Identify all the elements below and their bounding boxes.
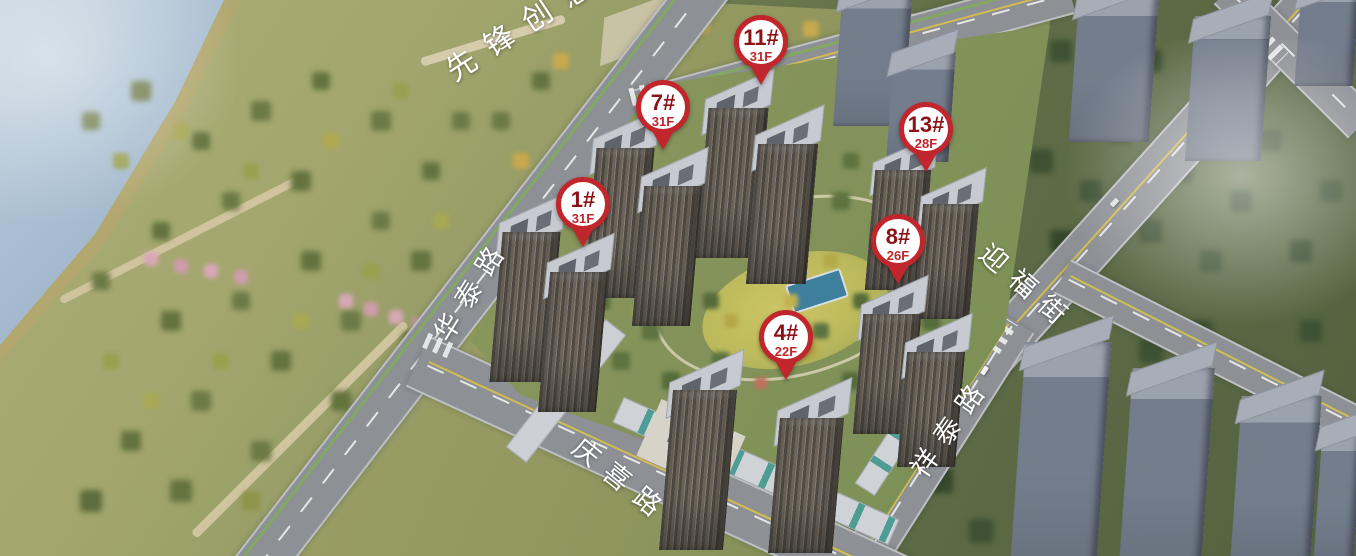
building-pin-8[interactable]: 8# 26F <box>870 214 926 286</box>
pin-number: 13# <box>908 112 945 137</box>
building-pin-13[interactable]: 13# 28F <box>898 102 954 174</box>
context-building <box>1313 430 1356 556</box>
context-building <box>1230 396 1322 556</box>
pin-floors: 31F <box>750 49 772 64</box>
aerial-masterplan: 先锋创意 华泰路 迎福街 祥泰路 庆喜路 1# 31F 4# 22F 7# 31… <box>0 0 1356 556</box>
pin-number: 1# <box>571 187 595 212</box>
context-building <box>1295 0 1356 86</box>
courtyard-trees-red <box>0 0 2 2</box>
pin-floors: 31F <box>572 211 594 226</box>
pin-number: 4# <box>774 320 798 345</box>
context-building <box>1069 0 1159 142</box>
pin-floors: 31F <box>652 114 674 129</box>
pin-floors: 26F <box>887 248 909 263</box>
pin-number: 7# <box>651 90 675 115</box>
context-building <box>1119 368 1215 556</box>
context-building <box>1010 342 1111 556</box>
building-pin-7[interactable]: 7# 31F <box>635 80 691 152</box>
pin-number: 8# <box>886 224 910 249</box>
building-pin-4[interactable]: 4# 22F <box>758 310 814 382</box>
building-pin-11[interactable]: 11# 31F <box>733 15 789 87</box>
context-building <box>1185 16 1271 161</box>
pin-floors: 22F <box>775 344 797 359</box>
pin-number: 11# <box>743 25 779 50</box>
building-pin-1[interactable]: 1# 31F <box>555 177 611 249</box>
pin-floors: 28F <box>915 136 937 151</box>
